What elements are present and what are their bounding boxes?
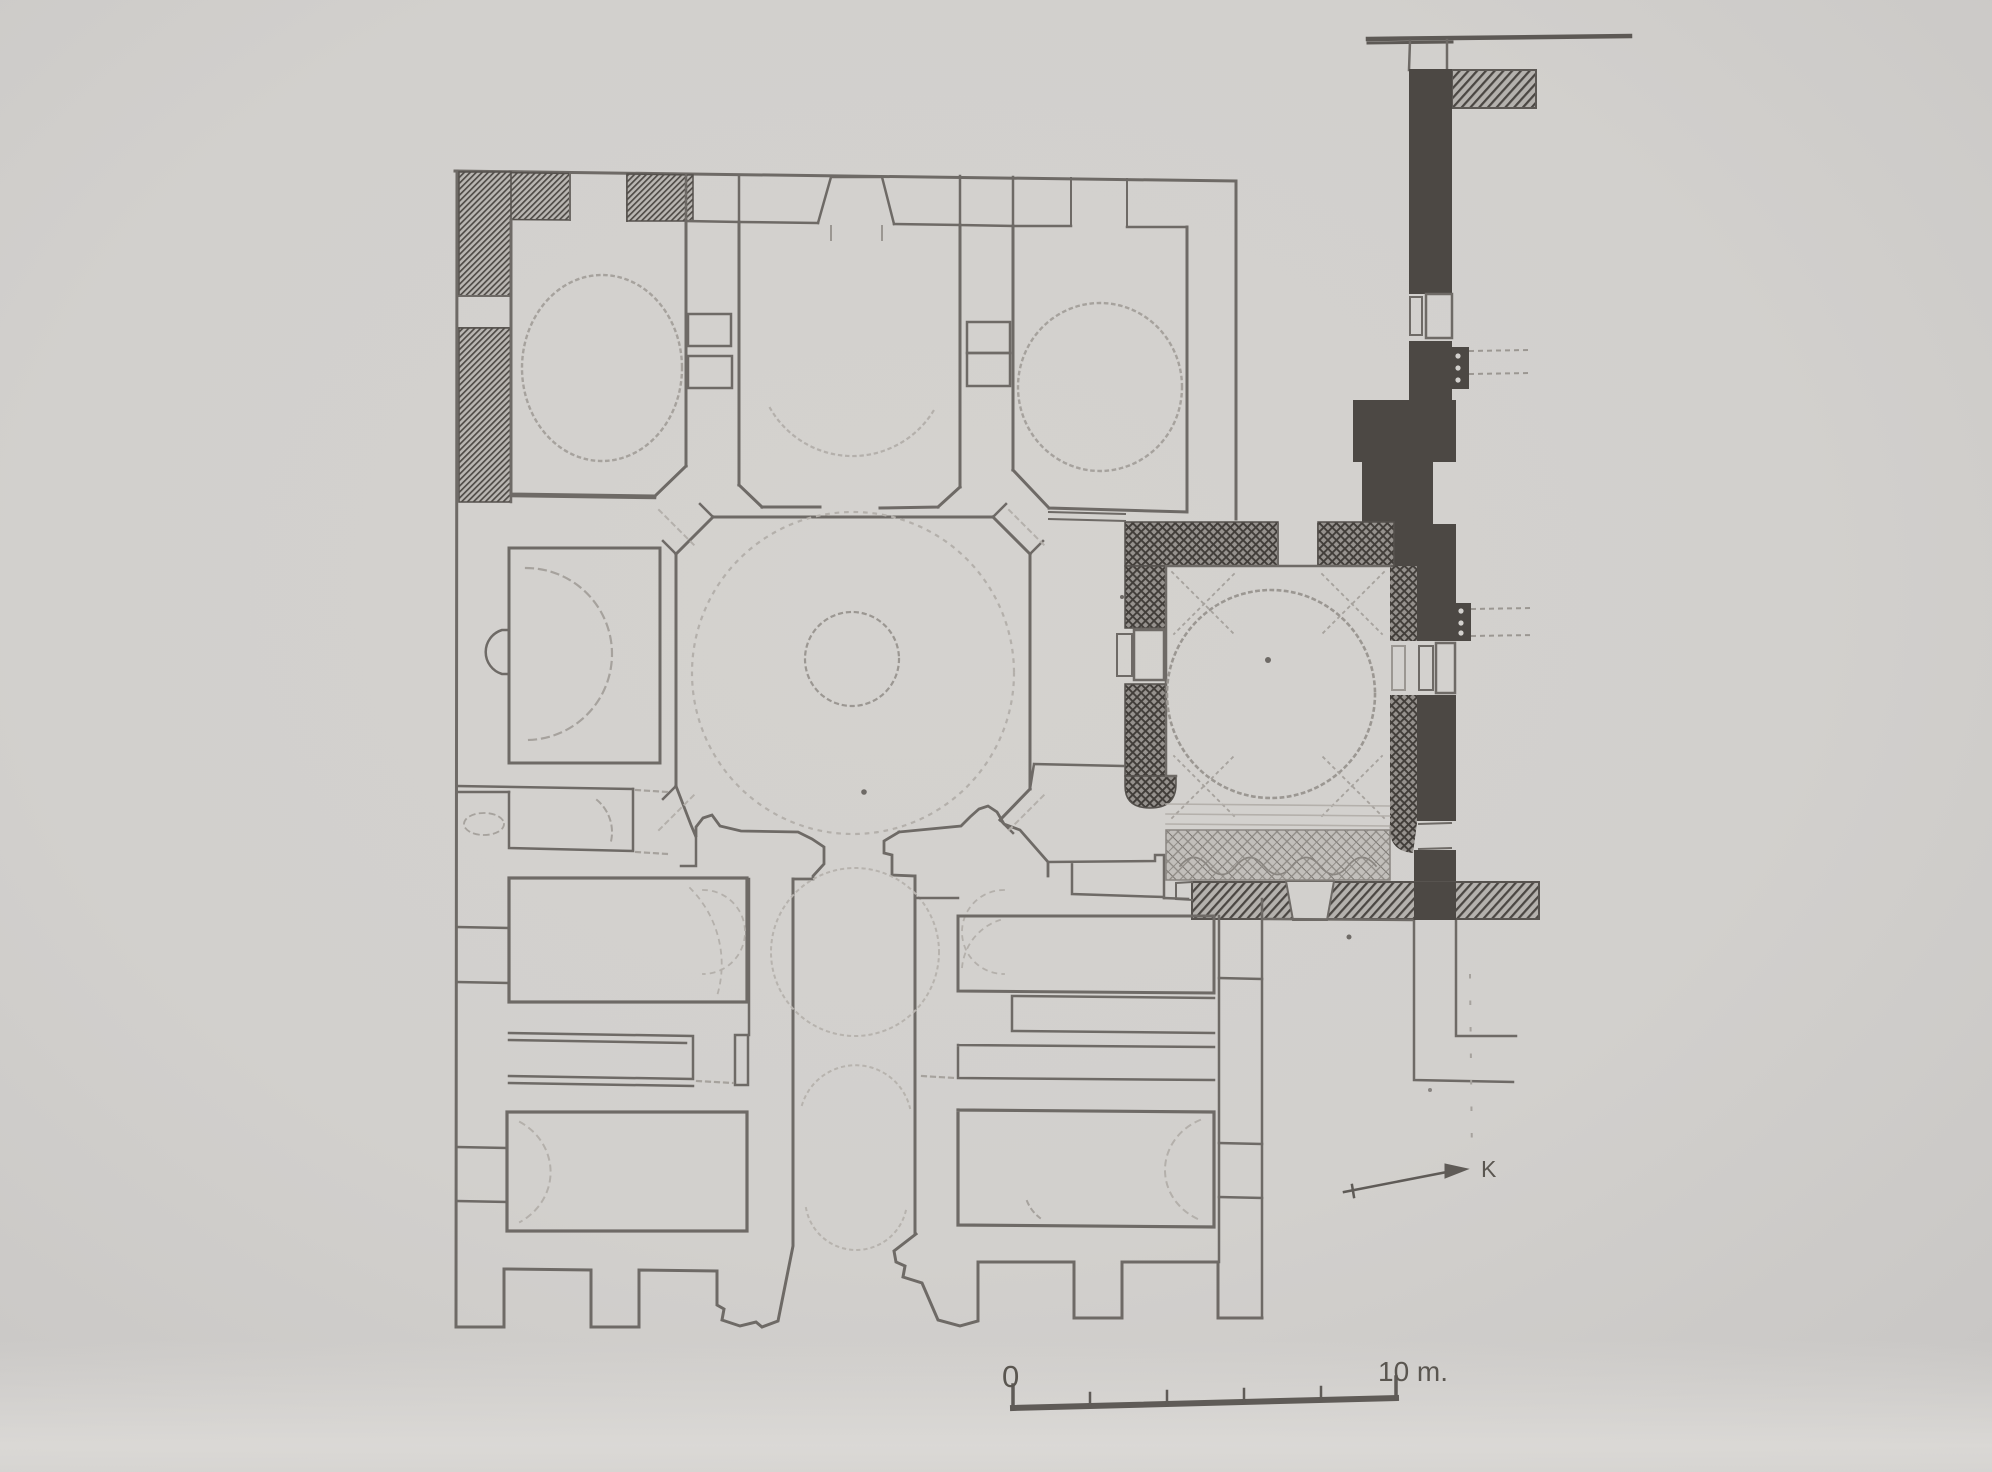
svg-text:10 m.: 10 m. bbox=[1378, 1356, 1448, 1387]
svg-text:K: K bbox=[1481, 1156, 1497, 1182]
svg-text:0: 0 bbox=[1002, 1359, 1019, 1394]
